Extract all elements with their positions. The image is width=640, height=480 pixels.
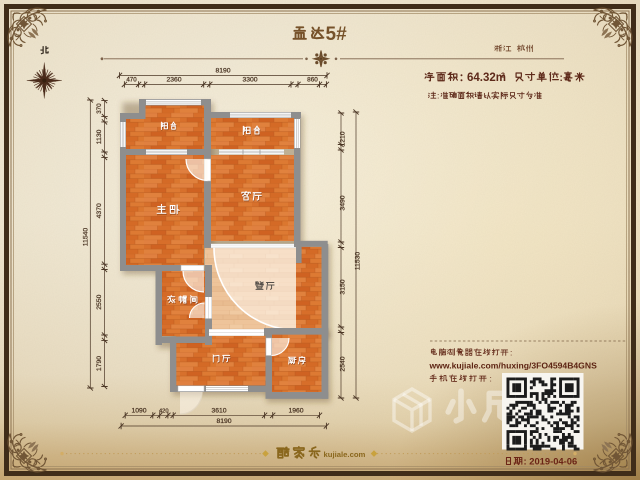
svg-text:1960: 1960 [288, 407, 303, 414]
svg-text:2: 2 [501, 73, 505, 80]
svg-text:kujiale.com: kujiale.com [324, 450, 366, 459]
svg-text:2540: 2540 [340, 356, 347, 371]
svg-text:www.kujiale.com/huxing/3FO4594: www.kujiale.com/huxing/3FO4594B4GNS [429, 360, 598, 370]
svg-text:2360: 2360 [166, 77, 181, 84]
svg-text:3300: 3300 [242, 77, 257, 84]
svg-text::: : [560, 73, 563, 84]
svg-text::: : [437, 91, 439, 101]
svg-text:5#: 5# [326, 24, 348, 45]
svg-text:11530: 11530 [355, 252, 362, 271]
svg-text:1090: 1090 [131, 407, 146, 414]
svg-text::: : [490, 373, 492, 383]
svg-text:3610: 3610 [211, 407, 226, 414]
svg-text:8190: 8190 [215, 68, 230, 75]
svg-text:1790: 1790 [96, 356, 103, 371]
svg-text:8190: 8190 [216, 418, 231, 425]
svg-text:470: 470 [126, 77, 137, 84]
svg-text:420: 420 [159, 408, 169, 414]
svg-text::: : [510, 347, 512, 357]
svg-text:1130: 1130 [96, 129, 103, 144]
svg-text:370: 370 [96, 103, 103, 114]
svg-text:11540: 11540 [83, 228, 90, 247]
svg-text:3150: 3150 [340, 279, 347, 294]
svg-text:860: 860 [307, 77, 318, 84]
svg-text:: 2019-04-06: : 2019-04-06 [524, 456, 578, 467]
svg-text:1210: 1210 [340, 131, 347, 146]
svg-text:3490: 3490 [340, 195, 347, 210]
svg-text:4370: 4370 [96, 203, 103, 218]
svg-text:2550: 2550 [96, 294, 103, 309]
